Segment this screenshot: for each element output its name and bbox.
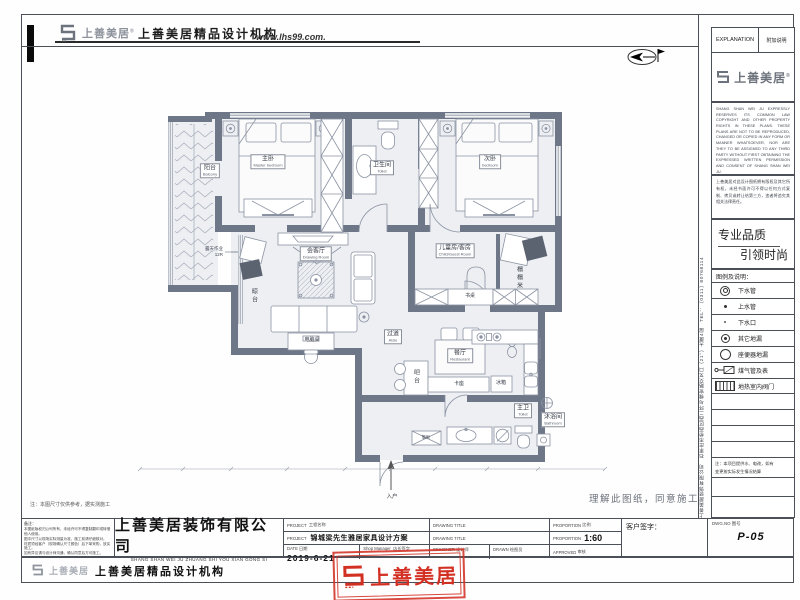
rug-icon (298, 262, 334, 298)
kitchen-sink-icon (524, 344, 538, 395)
dwg-no-cell: DWG.NO 图号 P-05 (707, 519, 794, 556)
slogan-bottom: 引领时尚 (740, 246, 788, 263)
legend-row: 座便器地漏 (712, 347, 794, 363)
second-tv-icon (465, 199, 533, 217)
shower-icon (542, 398, 553, 409)
room-label-bathroom: 卫生间Toilet (370, 160, 394, 175)
brand-wordmark: 上善美居 (49, 564, 89, 577)
room-label-dining: 餐厅Restaurant (447, 348, 473, 363)
legend-row: 地热室内阀门 (712, 379, 794, 395)
corner-note: 注：本图尺寸仅供参考，据实测施工 (30, 501, 110, 508)
brand-logo-icon (58, 24, 78, 42)
brand-logo-icon (31, 564, 45, 577)
company-stamp: 上善美居 (332, 548, 465, 600)
copyright-text-en: SHANG SHAN WEI JU EXPRESSLY RESERVES ITS… (711, 102, 795, 175)
water-pipe-icon (712, 305, 738, 308)
drawing-sheet: 上善美居® 上善美居精品设计机构 www.lhs99.com. 上善美居装饰有限… (0, 0, 800, 600)
tv-cabinet-icon (278, 233, 348, 245)
floor-plan-drawing (135, 56, 705, 506)
label-bar-counter: 吧台 (411, 367, 420, 387)
room-label-tatami: 榻榻米 (514, 264, 523, 292)
project-name: 锦城梁先生雅居家具设计方案 (311, 533, 409, 543)
room-label-laundry-balcony: 晾台 (249, 286, 258, 306)
room-label-master-bedroom: 主卧Master bedroom (250, 154, 285, 169)
remarks-cell: 备注： 本图纸版权归公司所有，未经许可不得复制翻印或转借他人使用。 图中尺寸以现… (21, 519, 114, 556)
brand-logo-icon (715, 70, 731, 85)
drain-outlet-icon (712, 321, 738, 323)
legend-row: 下水管 (712, 283, 794, 299)
legend-row-empty (712, 394, 794, 410)
client-sign-cell: 客户签字： (621, 519, 707, 556)
outdoor-work-annotation: 露天作业12R (205, 246, 223, 258)
label-booth: 卡座 (454, 382, 464, 388)
vanity-sink-icon (447, 427, 492, 444)
empty-cell (711, 496, 795, 518)
corner-mark (27, 25, 34, 62)
drain-pipe-icon (712, 286, 738, 296)
room-label-child-room: 儿童房/客房Child/Guest Room (436, 243, 475, 258)
legend-row: 其它地漏 (712, 331, 794, 347)
gas-meter-icon (712, 365, 738, 375)
brand-wordmark: 上善美居® (734, 69, 791, 86)
explanation-label-cn: 附加说明 (758, 28, 794, 52)
proportion-cell: PROPORTION 比例 PROPORTION1:60 APPROVED 审核 (549, 519, 621, 556)
sofa-icon (271, 306, 357, 332)
empty-cell (711, 477, 795, 497)
room-label-living-room: 会客厅Drawing Room (300, 246, 332, 261)
company-cell: 上善美居装饰有限公司 SHANG SHAN WEI JU ZHUANG SHI … (114, 519, 283, 556)
label-shoe-cabinet: 鞋柜 (422, 436, 430, 441)
brand-wordmark: 上善美居® (82, 25, 135, 41)
second-wardrobe-icon (419, 119, 438, 208)
floor-heating-valve-icon (712, 381, 738, 391)
toilet-drain-icon (712, 349, 738, 360)
legend-panel: 图例及说明： 下水管 上水管 下水口 其它地漏 座便器地漏 煤气管及表 地热 (711, 269, 795, 458)
stove-icon (472, 330, 538, 344)
label-entry: 入户 (386, 494, 397, 500)
stamp-text: 上善美居 (370, 559, 459, 590)
footer-agency: 上善美居精品设计机构 (95, 563, 225, 579)
label-computer-desk: 电脑桌 (304, 338, 319, 344)
legend-row: 煤气管及表 (712, 363, 794, 379)
mop-basin-icon (537, 434, 550, 446)
label-desk: 书桌 (465, 294, 475, 300)
label-fridge: 冰箱 (496, 381, 506, 387)
legend-title: 图例及说明： (712, 270, 794, 283)
explanation-label-en: EXPLANATION (712, 37, 758, 43)
legend-row: 下水口 (712, 315, 794, 331)
armchair-icon (351, 252, 375, 304)
floor-plan: 阳台Balcony 主卧Master bedroom 卫生间Toilet 次卧b… (135, 56, 705, 506)
legend-row-empty (712, 442, 794, 457)
master-wardrobe-icon (321, 119, 343, 232)
slogan-box: 专业品质 引领时尚 (711, 219, 795, 269)
dwg-number: P-05 (708, 531, 794, 543)
room-label-second-bedroom: 次卧bedroom (479, 154, 501, 169)
room-label-shower: 沐浴间Bathroom (541, 412, 565, 427)
room-label-master-bath: 主卫Toilet (514, 403, 532, 418)
slogan-top: 专业品质 (718, 226, 780, 247)
stamp-logo-icon (340, 564, 367, 589)
explanation-header: EXPLANATION 附加说明 (711, 27, 795, 53)
scale-value: 1:60 (584, 533, 602, 543)
header-website: www.lhs99.com. (256, 32, 326, 42)
sidebar-note: 注：本项目提供水、电改，如有 变更按实际发生情况结算 (711, 457, 795, 478)
legend-row-empty (712, 426, 794, 442)
floor-drain-icon (712, 334, 738, 343)
legend-row-empty (712, 410, 794, 426)
header-divider (21, 46, 698, 47)
agreement-text: 理解此图纸，同意施工 (589, 491, 699, 505)
washer-icon (494, 427, 511, 444)
dimension-line (138, 467, 607, 471)
room-label-balcony: 阳台Balcony (200, 163, 220, 178)
legend-row: 上水管 (712, 299, 794, 315)
room-label-aisle: 过道Aisle (384, 329, 402, 344)
copyright-text-cn: 上善美居对此设计图纸拥有版权及其它所有权，未经书面许可不得以任何方式复制、拷贝或… (711, 175, 795, 219)
sidebar-logo: 上善美居® (711, 52, 795, 102)
company-name: 上善美居装饰有限公司 (115, 514, 283, 556)
master-tv-icon (244, 199, 312, 217)
